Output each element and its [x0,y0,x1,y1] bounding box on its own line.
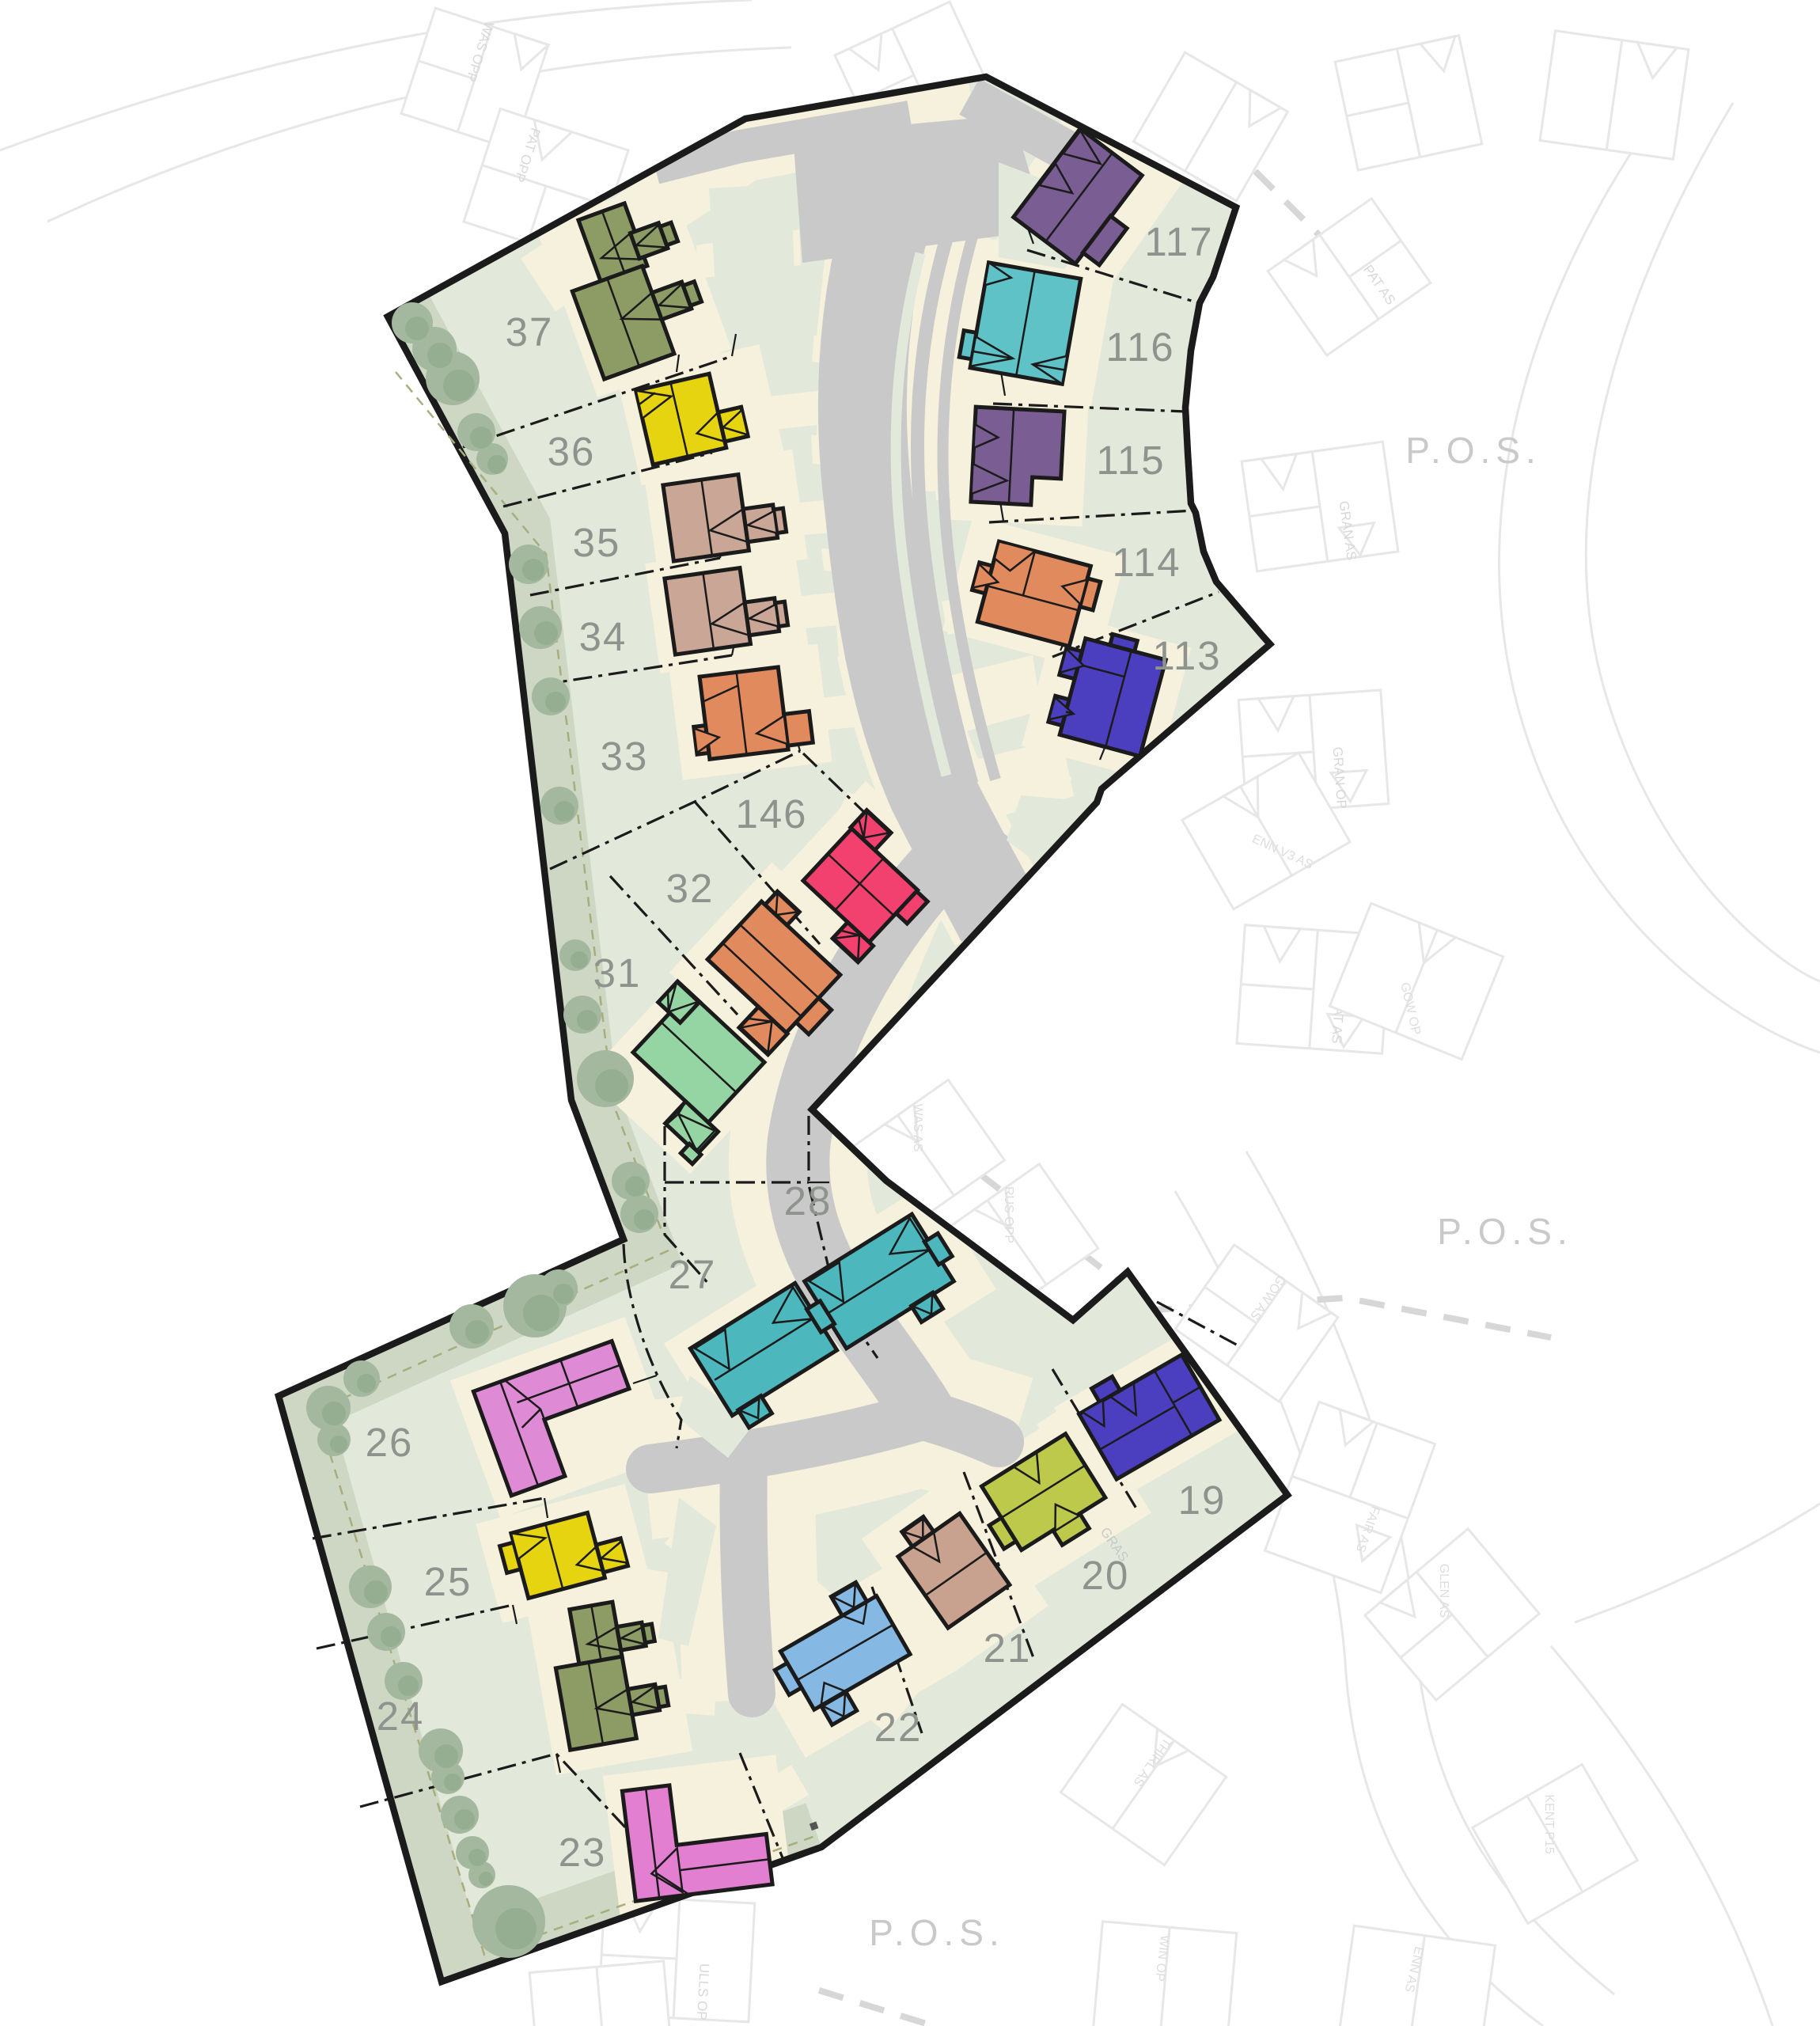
svg-text:35: 35 [573,520,621,565]
svg-text:RUS OPP: RUS OPP [1002,1186,1015,1243]
svg-text:KENT P15: KENT P15 [1542,1794,1556,1853]
svg-text:P.O.S.: P.O.S. [1437,1211,1573,1252]
svg-text:22: 22 [874,1705,923,1750]
svg-text:113: 113 [1152,633,1221,678]
svg-text:115: 115 [1096,438,1165,483]
svg-text:24: 24 [377,1694,425,1739]
svg-text:20: 20 [1082,1553,1130,1598]
svg-text:27: 27 [669,1252,717,1297]
svg-text:ULLS OP: ULLS OP [694,1963,712,2020]
svg-text:116: 116 [1105,324,1174,370]
svg-text:23: 23 [559,1830,607,1875]
svg-text:33: 33 [601,734,649,779]
svg-text:26: 26 [366,1420,414,1465]
svg-text:37: 37 [506,309,554,355]
svg-text:WAS AS: WAS AS [911,1104,924,1152]
svg-text:P.O.S.: P.O.S. [1405,430,1541,471]
svg-text:25: 25 [424,1559,472,1604]
svg-text:P.O.S.: P.O.S. [869,1912,1005,1953]
svg-text:28: 28 [784,1178,832,1224]
svg-text:31: 31 [593,950,642,996]
svg-text:19: 19 [1178,1478,1227,1523]
svg-text:34: 34 [579,614,628,659]
svg-text:146: 146 [735,791,807,837]
svg-text:117: 117 [1144,219,1213,264]
svg-text:32: 32 [666,866,715,911]
svg-text:36: 36 [548,429,596,474]
svg-text:114: 114 [1112,540,1181,585]
svg-text:21: 21 [984,1626,1032,1671]
svg-text:GLEN AS: GLEN AS [1437,1564,1450,1618]
